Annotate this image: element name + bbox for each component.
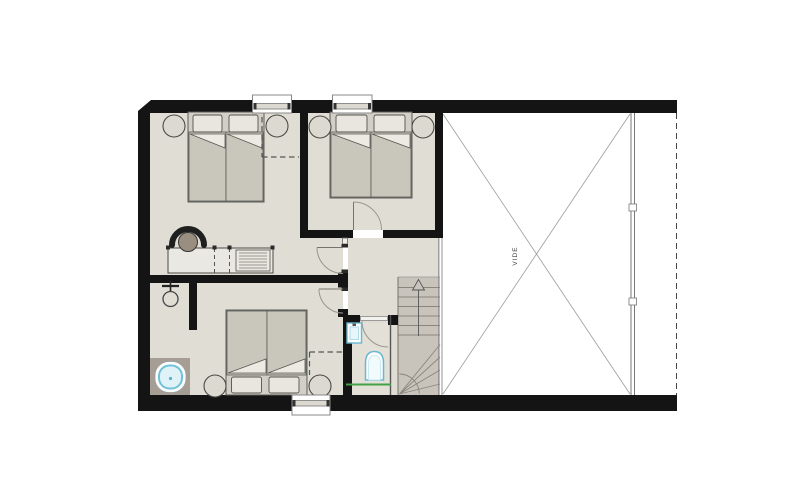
bathtub [155, 362, 186, 393]
pillow [336, 115, 367, 132]
floor-plan-page: VIDE [0, 0, 800, 498]
window-dormer-bedroom1 [253, 95, 292, 113]
glazed-wall [629, 113, 637, 395]
nightstand [163, 115, 185, 137]
stair-body [398, 277, 440, 395]
wall-void-left [435, 113, 443, 238]
washbasin [347, 323, 362, 343]
pillow [229, 115, 258, 132]
pillow [269, 377, 299, 393]
wall-bedroom2-south-b [383, 230, 443, 238]
partition-segment [343, 238, 348, 244]
pillow [374, 115, 405, 132]
nightstand [204, 375, 226, 397]
glazing-mullion [629, 298, 637, 305]
wall-hall-junction-a [338, 273, 348, 288]
wall-bottom [138, 395, 677, 411]
door-frame-tick [342, 270, 349, 274]
void-area: VIDE [443, 113, 677, 395]
bathtub-drain [169, 377, 172, 380]
pillow [193, 115, 222, 132]
window-dormer-bedroom3 [292, 395, 330, 415]
wall-shower-stub [189, 283, 197, 330]
wall-top [138, 100, 677, 113]
void-label: VIDE [512, 246, 519, 265]
door-frame-tick [342, 244, 349, 248]
pillow [232, 377, 262, 393]
washbasin-tap [353, 324, 357, 327]
nightstand [412, 116, 434, 138]
wall-left [138, 100, 150, 411]
wall-wc-top-left [343, 315, 360, 323]
window-dormer-bedroom2 [333, 95, 373, 113]
wall-wc-top-right [388, 315, 398, 325]
nightstand [309, 116, 331, 138]
toilet [366, 352, 384, 381]
wall-bath-divider [138, 275, 348, 283]
wall-bedroom2-south-a [300, 230, 353, 238]
nightstand [309, 375, 331, 397]
floor-plan-drawing: VIDE [0, 0, 800, 498]
nightstand [266, 115, 288, 137]
glazing-mullion [629, 204, 637, 211]
floor-bedroom-1-ext [300, 238, 343, 275]
wall-bedroom1-bedroom2 [300, 113, 308, 238]
